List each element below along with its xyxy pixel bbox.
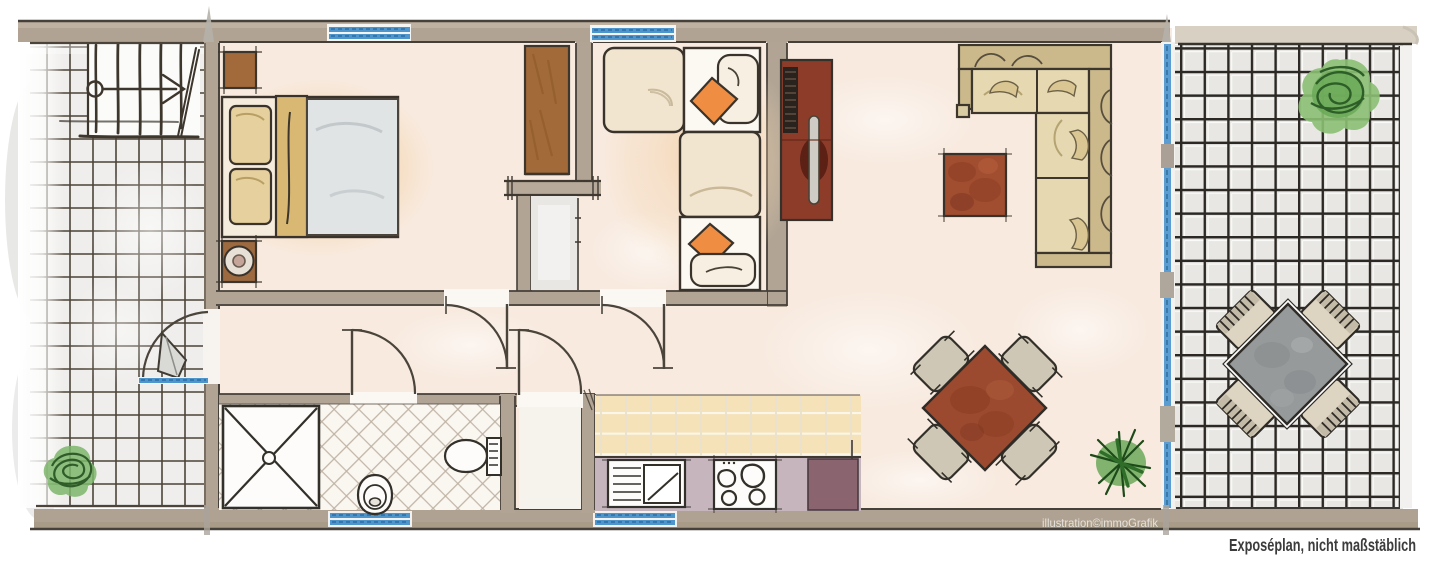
svg-text:Exposéplan, nicht maßstäblich: Exposéplan, nicht maßstäblich	[1229, 535, 1416, 555]
svg-text:illustration©immoGrafik: illustration©immoGrafik	[1042, 516, 1159, 530]
